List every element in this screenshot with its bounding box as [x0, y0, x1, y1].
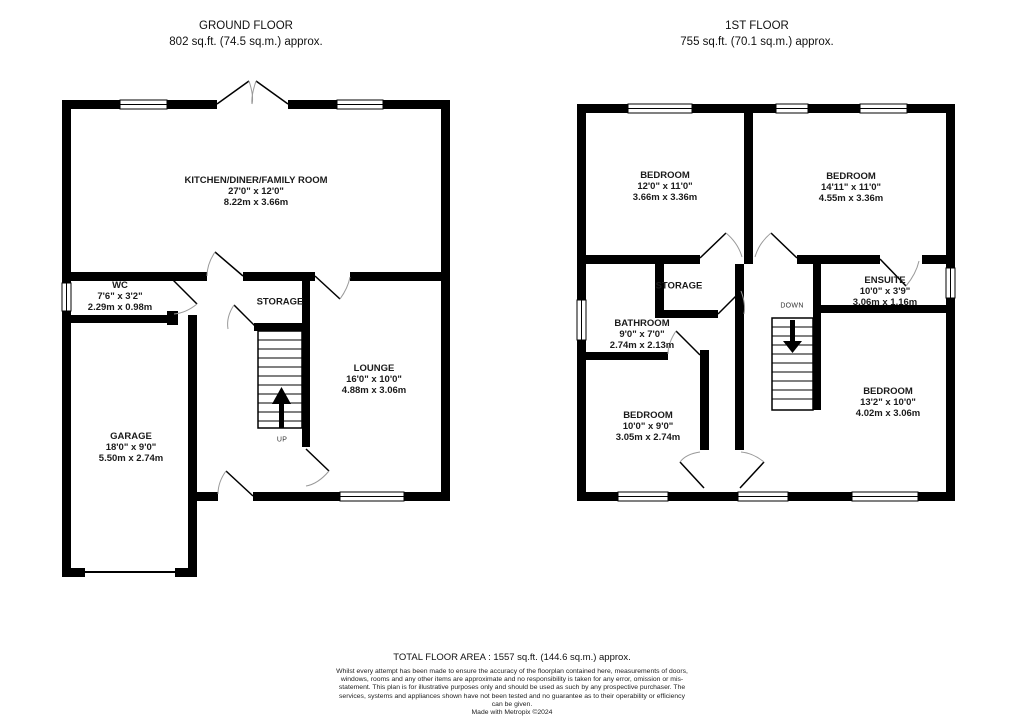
room-label-bathroom: BATHROOM 9'0" x 7'0" 2.74m x 2.13m — [610, 319, 674, 351]
room-label-wc: WC 7'6" x 3'2" 2.29m x 0.98m — [88, 281, 152, 313]
room-dim-m: 4.55m x 3.36m — [819, 193, 883, 204]
room-dim-ft: 13'2" x 10'0" — [856, 398, 920, 409]
room-dim-ft: 10'0" x 9'0" — [616, 422, 680, 433]
room-label-garage: GARAGE 18'0" x 9'0" 5.50m x 2.74m — [99, 432, 163, 464]
room-dim-ft: 7'6" x 3'2" — [88, 292, 152, 303]
room-name: STORAGE — [257, 298, 304, 309]
room-dim-m: 2.29m x 0.98m — [88, 302, 152, 313]
first-floor-title: 1ST FLOOR 755 sq.ft. (70.1 sq.m.) approx… — [680, 18, 833, 50]
room-label-lounge: LOUNGE 16'0" x 10'0" 4.88m x 3.06m — [342, 364, 406, 396]
room-dim-ft: 14'11" x 11'0" — [819, 183, 883, 194]
room-dim-m: 4.02m x 3.06m — [856, 408, 920, 419]
room-dim-ft: 16'0" x 10'0" — [342, 375, 406, 386]
stairs-up-label: UP — [277, 437, 287, 444]
room-dim-ft: 9'0" x 7'0" — [610, 330, 674, 341]
metropix-credit: Made with Metropix ©2024 — [336, 709, 688, 716]
room-dim-m: 3.66m x 3.36m — [633, 192, 697, 203]
room-label-bedroom-2: BEDROOM 14'11" x 11'0" 4.55m x 3.36m — [819, 172, 883, 204]
room-dim-m: 4.88m x 3.06m — [342, 385, 406, 396]
room-dim-ft: 12'0" x 11'0" — [633, 182, 697, 193]
room-label-bedroom-1: BEDROOM 12'0" x 11'0" 3.66m x 3.36m — [633, 171, 697, 203]
ground-floor-title-line: GROUND FLOOR — [169, 18, 322, 34]
ground-floor-walls — [62, 100, 450, 577]
ground-floor-title: GROUND FLOOR 802 sq.ft. (74.5 sq.m.) app… — [169, 18, 322, 50]
ground-floor-area: 802 sq.ft. (74.5 sq.m.) approx. — [169, 34, 322, 50]
room-label-storage-ground: STORAGE — [257, 298, 304, 309]
room-label-bedroom-3: BEDROOM 10'0" x 9'0" 3.05m x 2.74m — [616, 411, 680, 443]
disclaimer-text: Whilst every attempt has been made to en… — [336, 668, 688, 709]
first-floor-area: 755 sq.ft. (70.1 sq.m.) approx. — [680, 34, 833, 50]
room-name: STORAGE — [656, 282, 703, 293]
ground-floor-doors — [172, 81, 350, 496]
ground-floor-stairs — [258, 331, 302, 428]
room-dim-m: 3.06m x 1.16m — [853, 297, 917, 308]
room-label-kitchen: KITCHEN/DINER/FAMILY ROOM 27'0" x 12'0" … — [181, 176, 331, 208]
total-floor-area: TOTAL FLOOR AREA : 1557 sq.ft. (144.6 sq… — [0, 652, 1024, 663]
room-dim-ft: 18'0" x 9'0" — [99, 443, 163, 454]
floorplan-drawing — [0, 0, 1024, 721]
room-dim-ft: 27'0" x 12'0" — [181, 187, 331, 198]
room-label-ensuite: ENSUITE 10'0" x 3'9" 3.06m x 1.16m — [853, 276, 917, 308]
room-dim-ft: 10'0" x 3'9" — [853, 287, 917, 298]
stairs-down-label: DOWN — [780, 303, 803, 310]
room-dim-m: 5.50m x 2.74m — [99, 453, 163, 464]
room-dim-m: 2.74m x 2.13m — [610, 340, 674, 351]
first-floor-title-line: 1ST FLOOR — [680, 18, 833, 34]
room-dim-m: 3.05m x 2.74m — [616, 432, 680, 443]
first-floor-stairs — [772, 318, 813, 410]
room-label-bedroom-4: BEDROOM 13'2" x 10'0" 4.02m x 3.06m — [856, 387, 920, 419]
room-label-storage-first: STORAGE — [656, 282, 703, 293]
floorplan-page: GROUND FLOOR 802 sq.ft. (74.5 sq.m.) app… — [0, 0, 1024, 721]
room-dim-m: 8.22m x 3.66m — [181, 197, 331, 208]
ground-floor-plan — [62, 81, 450, 577]
